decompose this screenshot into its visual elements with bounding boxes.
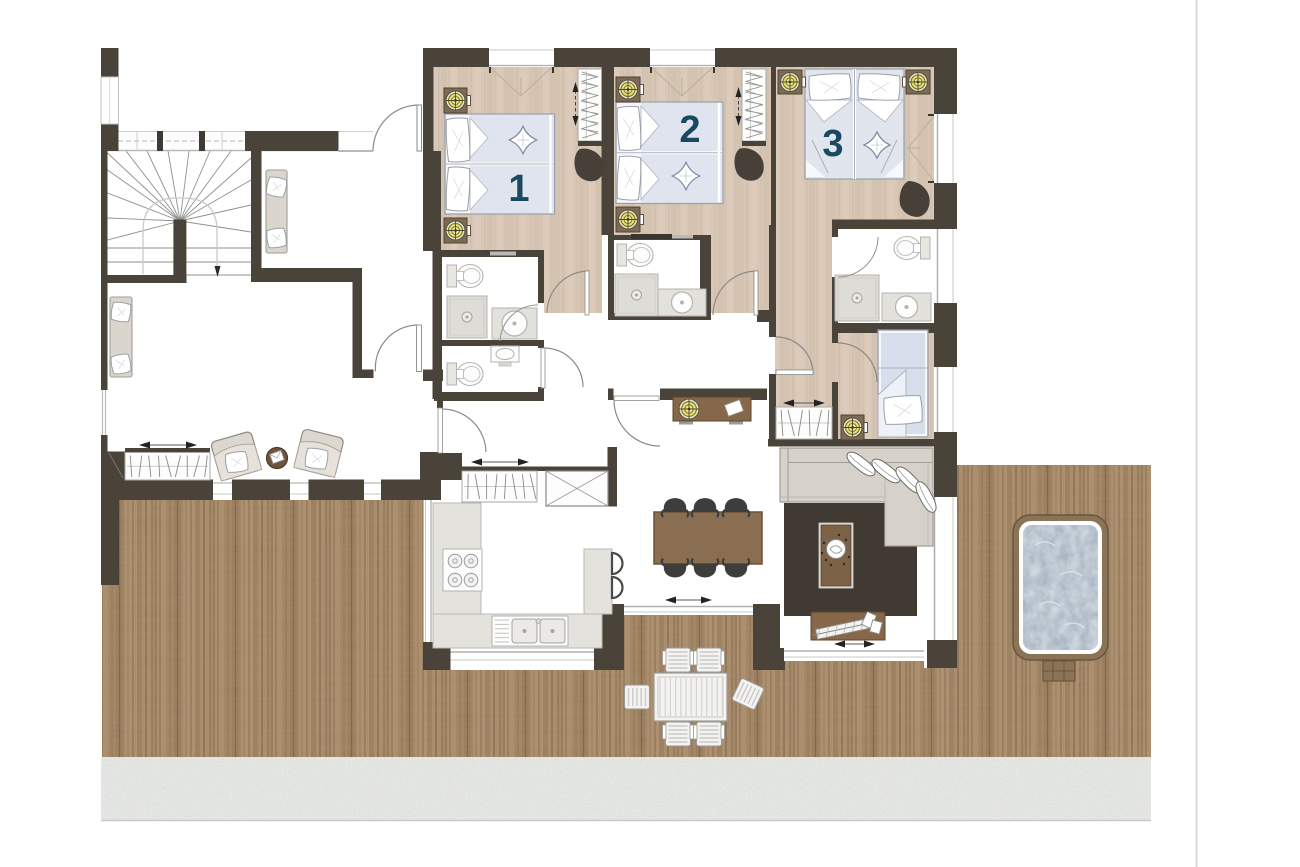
svg-text:2: 2 xyxy=(679,109,700,151)
svg-text:3: 3 xyxy=(822,123,843,165)
svg-text:1: 1 xyxy=(508,168,529,210)
